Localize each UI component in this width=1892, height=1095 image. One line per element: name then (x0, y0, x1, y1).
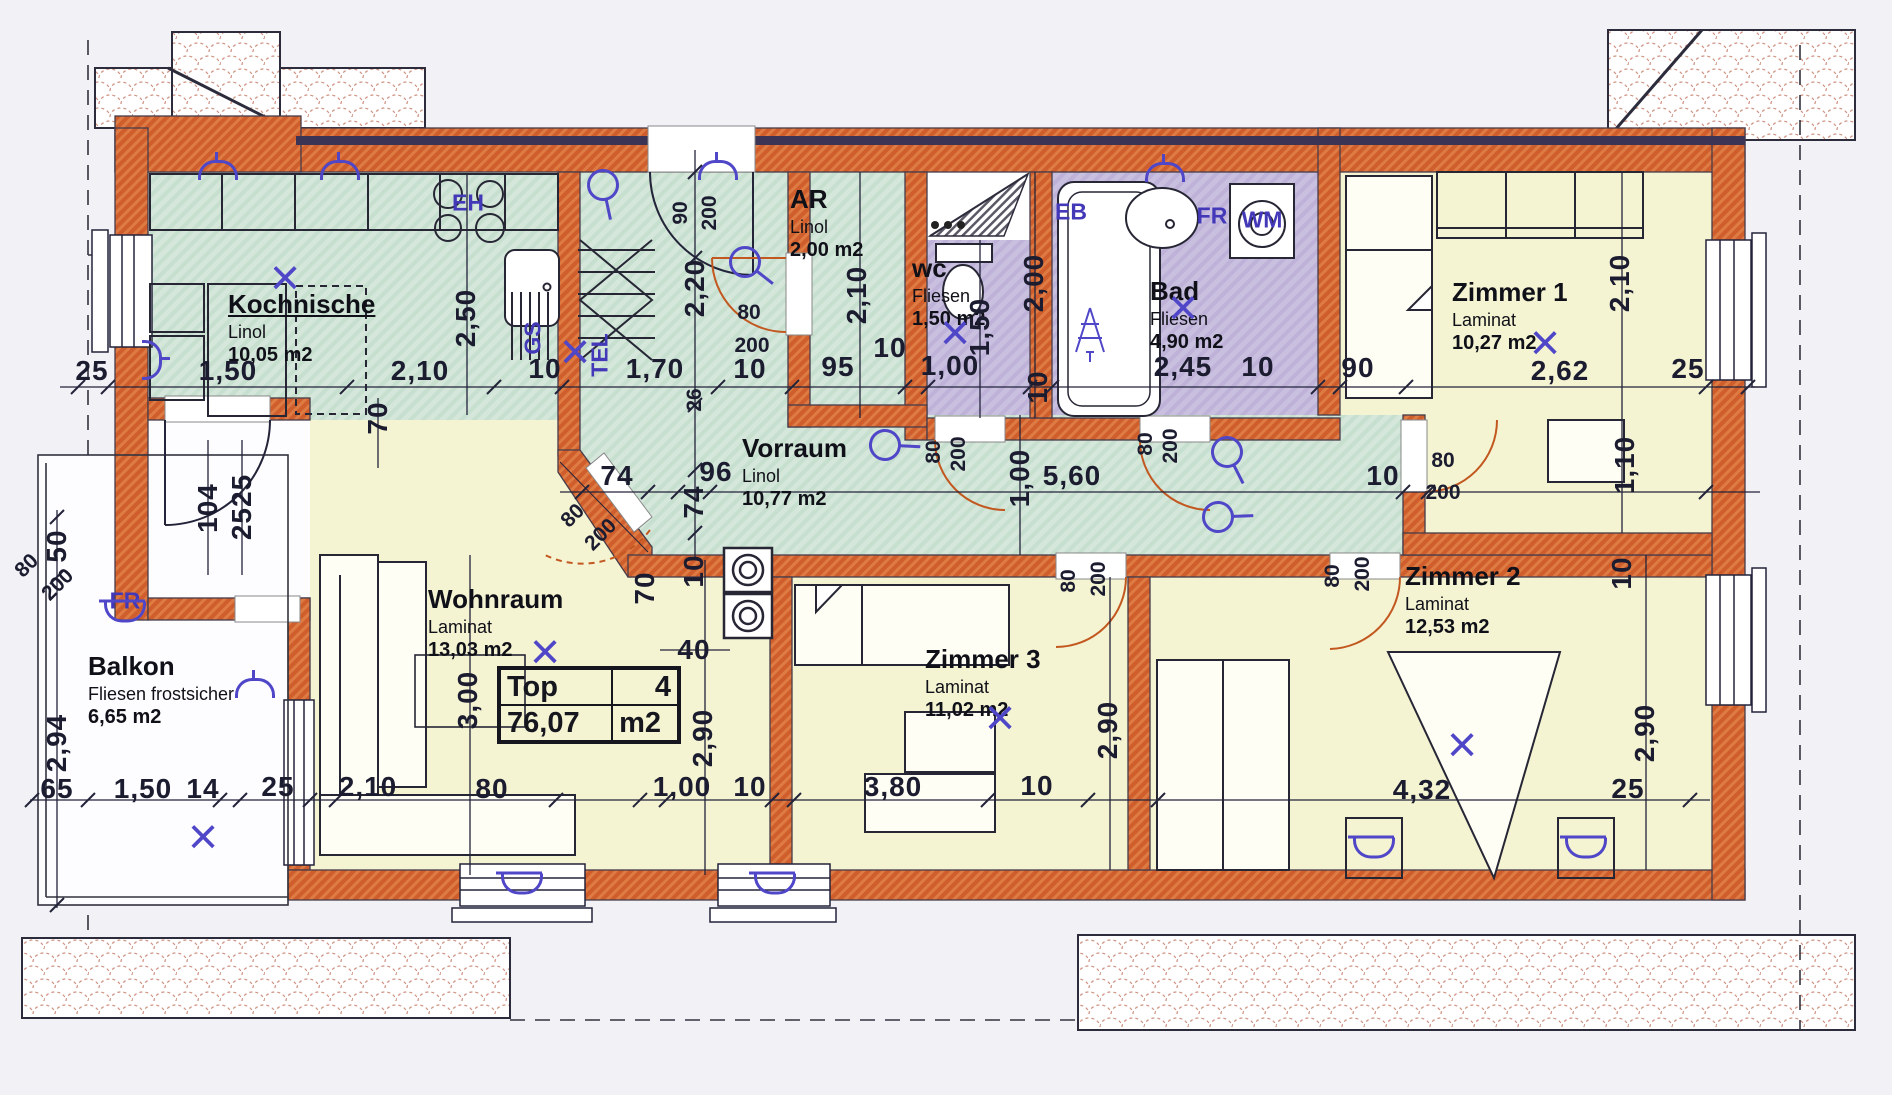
tel-fixture-label: TEL (587, 333, 614, 376)
dimension-label: 1,00 (653, 771, 712, 803)
dimension-label: 2,45 (1154, 351, 1213, 383)
wm-fixture-label: WM (1242, 207, 1283, 234)
light-switch-icon (1206, 431, 1249, 474)
room-area: 6,65 m2 (88, 705, 234, 730)
heater-icon (754, 874, 796, 895)
dimension-label: 14 (186, 773, 219, 805)
dimension-label: 2,94 (41, 714, 73, 773)
room-material: Linol (228, 321, 375, 344)
heater-icon (104, 602, 146, 623)
dimension-label: 25 (1611, 773, 1644, 805)
room-label-zimmer2: Zimmer 2 Laminat 12,53 m2 (1405, 560, 1521, 640)
dimension-label: 80 (556, 499, 589, 532)
dimension-label: 10 (1022, 370, 1054, 403)
dimension-label: 1,10 (1609, 436, 1641, 495)
dimension-label: 2,20 (679, 259, 711, 318)
heater-icon (1565, 838, 1607, 859)
dimension-label: 200 (1087, 561, 1111, 596)
dimension-label: 90 (1341, 352, 1374, 384)
dimension-label: 1,50 (114, 773, 173, 805)
dimension-label: 2,90 (1092, 701, 1124, 760)
dimension-label: 200 (1351, 556, 1375, 591)
socket-icon (320, 160, 360, 180)
dimension-label: 2,10 (339, 771, 398, 803)
room-name: AR (790, 183, 863, 216)
socket-icon (198, 160, 238, 180)
light-switch-icon (863, 423, 908, 468)
room-label-zimmer3: Zimmer 3 Laminat 11,02 m2 (925, 643, 1041, 723)
fr-fixture-label: FR (1197, 203, 1228, 230)
dimension-label: 104 (192, 483, 224, 533)
dimension-label: 25 (1671, 353, 1704, 385)
dimension-label: 3,00 (452, 671, 484, 730)
room-name: Wohnraum (428, 583, 563, 616)
room-area: 12,53 m2 (1405, 615, 1521, 640)
apartment-summary-box: Top 4 76,07 m2 (497, 666, 681, 744)
dimension-label: 200 (580, 514, 622, 556)
heater-icon (501, 874, 543, 895)
dimension-label: 200 (947, 436, 971, 471)
room-material: Linol (742, 465, 847, 488)
room-name: Zimmer 3 (925, 643, 1041, 676)
light-switch-icon (729, 246, 761, 278)
dimension-label: 2,10 (391, 355, 450, 387)
dimension-label: 50 (41, 529, 73, 562)
dimension-label: 10 (1606, 556, 1638, 589)
eh-fixture-label: EH (452, 190, 484, 217)
dimension-label: 10 (1241, 351, 1274, 383)
dimension-label: 10 (1020, 770, 1053, 802)
dimension-label: 26 (683, 388, 707, 411)
dimension-label: 10 (1366, 460, 1399, 492)
dimension-label: 70 (629, 571, 661, 604)
heater-icon (1353, 838, 1395, 859)
dimension-label: 2,50 (450, 289, 482, 348)
room-label-vorraum: Vorraum Linol 10,77 m2 (742, 432, 847, 512)
room-label-ar: AR Linol 2,00 m2 (790, 183, 863, 263)
dimension-label: 90 (669, 201, 693, 224)
socket-icon (698, 160, 738, 180)
apartment-number: 4 (612, 669, 678, 705)
dimension-label: 1,70 (626, 353, 685, 385)
room-material: Laminat (1405, 593, 1521, 616)
dimension-label: 80 (737, 301, 760, 325)
dimension-label: 200 (37, 564, 79, 606)
dimension-label: 2,90 (1629, 704, 1661, 763)
dimension-label: 5,60 (1043, 460, 1102, 492)
dimension-label: 1,50 (199, 355, 258, 387)
dimension-label: 80 (1134, 432, 1158, 455)
dimension-label: 70 (362, 401, 394, 434)
dimension-label: 96 (699, 456, 732, 488)
dimension-label: 2525 (226, 474, 258, 540)
dimension-label: 95 (821, 351, 854, 383)
dimension-label: 80 (475, 773, 508, 805)
room-name: wc (912, 252, 985, 285)
dimension-label: 2,00 (1018, 254, 1050, 313)
light-switch-icon (580, 162, 625, 207)
dimension-label: 80 (10, 549, 43, 582)
room-name: Zimmer 2 (1405, 560, 1521, 593)
socket-icon (235, 678, 275, 698)
room-area: 2,00 m2 (790, 238, 863, 263)
room-name: Balkon (88, 650, 234, 683)
dimension-label: 1,00 (1004, 449, 1036, 508)
room-material: Fliesen frostsicher (88, 683, 234, 706)
dimension-label: 2,90 (687, 709, 719, 768)
floor-plan-page: Kochnische Linol 10,05 m2 AR Linol 2,00 … (0, 0, 1892, 1095)
room-label-balkon: Balkon Fliesen frostsicher 6,65 m2 (88, 650, 234, 730)
room-area: 11,02 m2 (925, 698, 1041, 723)
label-overlay: Kochnische Linol 10,05 m2 AR Linol 2,00 … (0, 0, 1892, 1095)
dimension-label: 74 (678, 485, 710, 518)
eb-fixture-label: EB (1055, 199, 1087, 226)
dimension-label: 74 (600, 460, 633, 492)
dimension-label: 25 (75, 355, 108, 387)
dimension-label: 2,10 (841, 266, 873, 325)
dimension-label: 80 (1431, 449, 1454, 473)
dimension-label: 200 (698, 195, 722, 230)
dimension-label: 4,32 (1393, 774, 1452, 806)
room-name: Zimmer 1 (1452, 276, 1568, 309)
socket-icon (142, 340, 162, 380)
dimension-label: 25 (261, 771, 294, 803)
dimension-label: 80 (922, 440, 946, 463)
dimension-label: 200 (734, 334, 769, 358)
dimension-label: 200 (1159, 428, 1183, 463)
socket-icon (1145, 162, 1185, 182)
room-name: Vorraum (742, 432, 847, 465)
dimension-label: 10 (678, 554, 710, 587)
apartment-area: 76,07 (500, 705, 612, 741)
dimension-label: 65 (40, 773, 73, 805)
dimension-label: 40 (677, 634, 710, 666)
dimension-label: 10 (733, 771, 766, 803)
apartment-area-unit: m2 (612, 705, 678, 741)
dimension-label: 3,80 (864, 771, 923, 803)
dimension-label: 2,10 (1604, 254, 1636, 313)
light-switch-icon (1195, 494, 1240, 539)
gs-fixture-label: GS (520, 321, 547, 354)
room-material: Linol (790, 216, 863, 239)
room-area: 10,77 m2 (742, 487, 847, 512)
dimension-label: 80 (1321, 564, 1345, 587)
room-material: Laminat (925, 676, 1041, 699)
dimension-label: 80 (1057, 569, 1081, 592)
dimension-label: 200 (1425, 481, 1460, 505)
dimension-label: 10 (528, 353, 561, 385)
room-name: Kochnische (228, 288, 375, 321)
dimension-label: 10 (873, 332, 906, 364)
